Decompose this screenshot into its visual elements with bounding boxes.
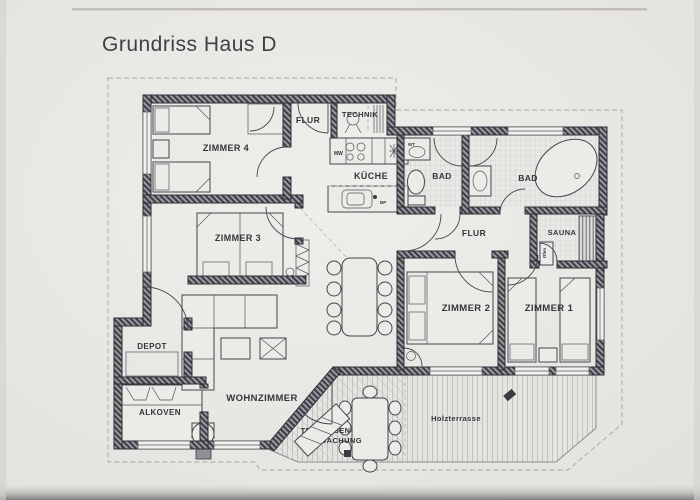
toilet-tank <box>408 196 425 205</box>
toilet <box>408 170 425 194</box>
zimmer1-label: ZIMMER 1 <box>525 303 574 314</box>
single-bed <box>508 278 536 362</box>
single-bed <box>560 278 590 362</box>
paper-edge-line <box>72 8 647 11</box>
nightstand <box>153 140 169 158</box>
window <box>515 367 549 375</box>
window <box>430 367 482 375</box>
nightstand <box>539 348 557 362</box>
floor-plan-drawing: Grundriss Haus D TERRASSEN- ÜBERDACHUNG … <box>0 0 700 500</box>
window <box>597 288 604 340</box>
wood-terrace-label: Holzterrasse <box>431 414 481 423</box>
faucet <box>373 195 377 199</box>
sauna-label: SAUNA <box>548 228 577 237</box>
bad-right-label: BAD <box>518 173 538 183</box>
zimmer4-label: ZIMMER 4 <box>203 143 249 153</box>
bad-left-label: BAD <box>432 171 452 181</box>
bottom-shadow <box>0 484 700 500</box>
canopy-post <box>344 450 351 457</box>
ofen-label: Ofen <box>542 248 547 259</box>
washbasin-cabinet <box>469 166 491 196</box>
zimmer2-label: ZIMMER 2 <box>442 303 491 314</box>
bp-label: BP <box>380 200 386 205</box>
window <box>556 367 589 375</box>
flur-top-label: FLUR <box>296 115 320 125</box>
window <box>214 441 260 449</box>
window <box>143 216 151 272</box>
sauna-bench <box>579 216 596 261</box>
page-title: Grundriss Haus D <box>102 33 277 56</box>
kueche-label: KÜCHE <box>354 171 388 181</box>
left-edge-shadow <box>0 0 6 500</box>
room-alkoven: ALKOVEN <box>122 385 202 441</box>
window <box>508 127 563 135</box>
door-step <box>196 448 211 459</box>
flur-right-label: FLUR <box>462 228 486 238</box>
wohnzimmer-label: WOHNZIMMER <box>226 393 298 404</box>
microwave-label: MW <box>334 151 343 157</box>
side-table <box>221 338 250 359</box>
right-edge-shadow <box>694 0 700 500</box>
zimmer3-label: ZIMMER 3 <box>215 233 261 243</box>
window <box>433 127 471 135</box>
dining-table <box>342 258 377 336</box>
window <box>138 441 190 449</box>
floor-plan-photo: Grundriss Haus D TERRASSEN- ÜBERDACHUNG … <box>0 0 700 500</box>
depot-label: DEPOT <box>137 342 167 351</box>
technik-label: TECHNIK <box>342 110 378 119</box>
single-bed <box>153 162 210 192</box>
alkoven-label: ALKOVEN <box>139 408 181 417</box>
wt-label: WT <box>408 142 415 147</box>
single-bed <box>153 106 210 134</box>
outdoor-table <box>352 398 388 460</box>
window <box>143 112 151 174</box>
